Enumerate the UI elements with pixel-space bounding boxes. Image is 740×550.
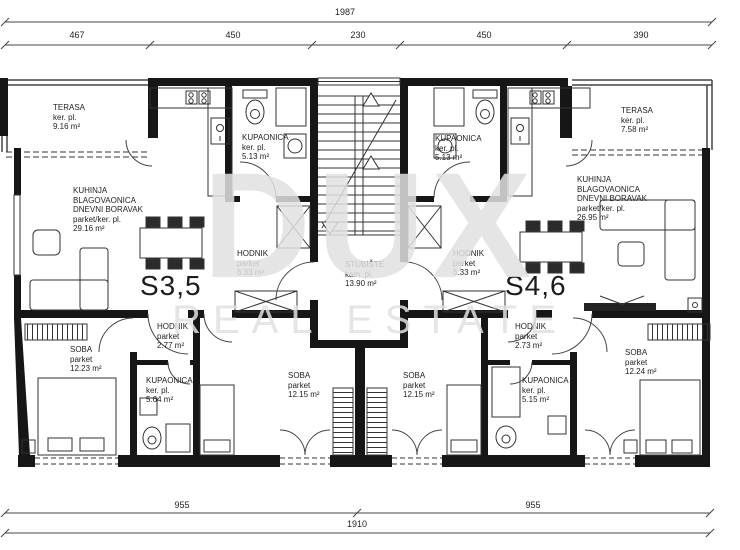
dim-top-seg-5: 390 [633, 30, 648, 40]
staircase [318, 93, 400, 235]
sofa-left [30, 230, 108, 310]
wall-column-right [688, 298, 702, 312]
label-bedroom3-right: SOBAparket12.24 m² [625, 348, 657, 377]
label-terrace-right: TERASAker. pl.7.58 m² [621, 106, 653, 135]
label-stairwell: STUBIŠTEkam. pl.13.90 m² [345, 260, 384, 289]
bathroom-bottom-left-fixtures [140, 398, 190, 452]
label-bath-bottom-right: KUPAONICAker. pl.5.15 m² [522, 376, 569, 405]
bed-bedroom2-right [447, 385, 481, 455]
dining-table-left [140, 217, 204, 269]
dim-bottom-total: 1910 [347, 519, 367, 529]
dim-top-seg-1: 467 [69, 30, 84, 40]
label-bath-top-left: KUPAONICAker. pl.5.13 m² [242, 133, 289, 162]
label-bath-bottom-left: KUPAONICAker. pl.5.64 m² [146, 376, 193, 405]
label-hall2-left: HODNIKparket2.77 m² [157, 322, 188, 351]
terrace-thresholds [6, 150, 702, 157]
label-hall-right: HODNIKparket6.33 m² [453, 249, 484, 278]
dim-top-seg-3: 230 [350, 30, 365, 40]
label-bath-top-right: KUPAONICAker. pl.5.13 m² [435, 134, 482, 163]
label-hall2-right: HODNIKparket2.73 m² [515, 322, 546, 351]
unit-id-left: S3,5 [140, 270, 202, 302]
dim-top-total: 1987 [335, 7, 355, 17]
dining-table-right [520, 221, 584, 273]
dim-bottom-seg-2: 955 [525, 500, 540, 510]
tv-bench-right [584, 296, 656, 311]
bed-bedroom2-left [200, 385, 234, 455]
label-terrace-left: TERASAker. pl.9.16 m² [53, 103, 85, 132]
unit-id-right: S4,6 [505, 270, 567, 302]
label-living-left: KUHINJABLAGOVAONICADNEVNI BORAVAKparket/… [73, 186, 143, 234]
label-living-right: KUHINJABLAGOVAONICADNEVNI BORAVAKparket/… [577, 175, 647, 223]
bed-bedroom1-left [22, 378, 116, 455]
kitchen-left [150, 88, 232, 196]
label-bedroom2-right: SOBAparket12.15 m² [403, 371, 435, 400]
dim-top-seg-2: 450 [225, 30, 240, 40]
floor-plan: 1987 467 450 230 450 390 955 955 1910 TE… [0, 0, 740, 550]
dim-top-seg-4: 450 [476, 30, 491, 40]
dim-bottom-seg-1: 955 [174, 500, 189, 510]
label-hall-left: HODNIKparket6.33 m² [237, 249, 268, 278]
label-bedroom1-left: SOBAparket12.23 m² [70, 345, 102, 374]
bed-bedroom3-right [624, 380, 700, 455]
label-bedroom2-left: SOBAparket12.15 m² [288, 371, 320, 400]
